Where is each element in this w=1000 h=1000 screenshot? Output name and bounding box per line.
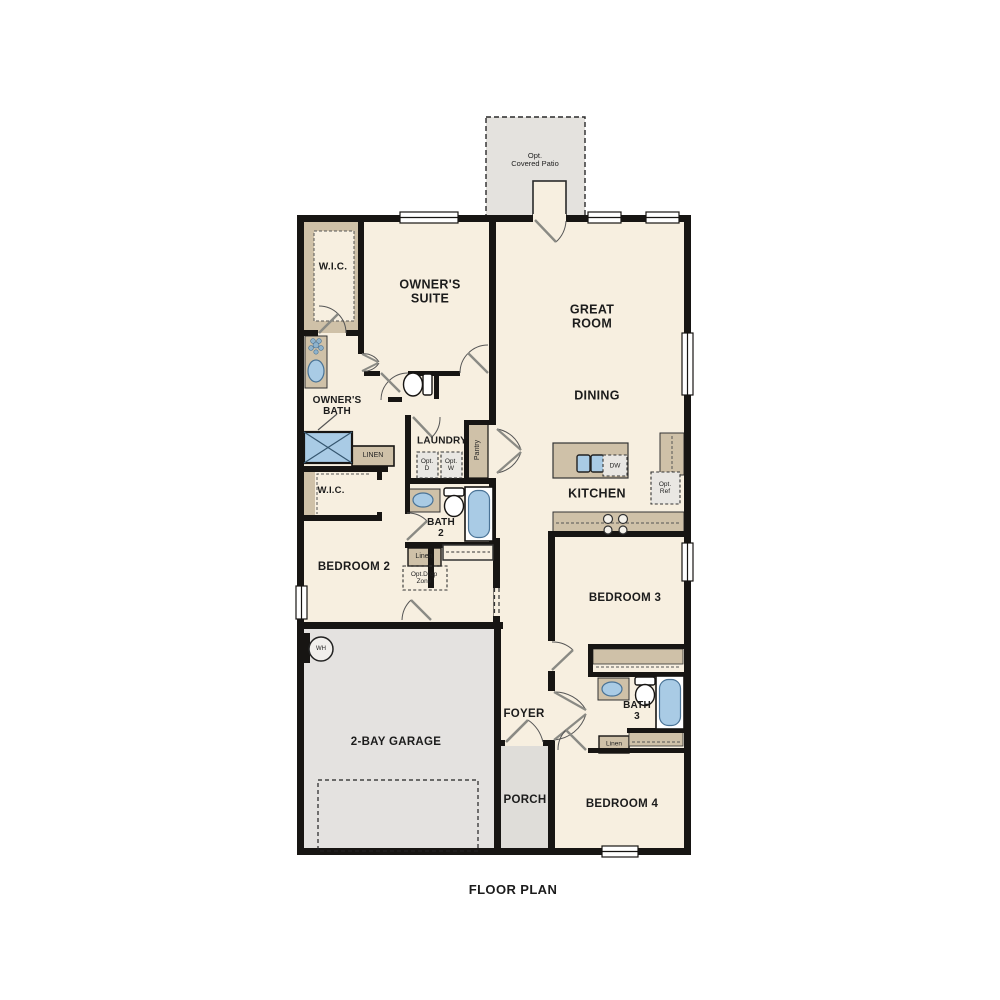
label-great-room: GREATROOM [570,304,614,331]
floor-plan-page: Opt.Covered Patio W.I.C. OWNER'SSUITE GR… [0,0,1000,1000]
label-owners-bath: OWNER'SBATH [313,396,362,418]
wic2-shelving [303,470,315,518]
floor-plan-drawing [0,0,1000,1000]
label-patio: Opt.Covered Patio [511,152,559,168]
bedroom4-closet [629,731,683,746]
bath2-toilet [444,488,464,517]
bath2-sink [413,493,433,507]
bedroom3-closet [593,649,683,664]
owners-shower [304,432,352,463]
label-pantry: Pantry [474,440,482,460]
page-title: FLOOR PLAN [469,883,558,897]
label-foyer: FOYER [503,708,544,720]
label-garage: 2-BAY GARAGE [351,736,442,748]
label-opt-drop-zone: Opt.DropZone [411,571,437,585]
label-wic1: W.I.C. [319,263,347,274]
label-linen2: Linen [415,553,432,561]
bath3-tub [656,676,684,729]
bath2-tub [465,487,493,541]
owners-toilet [404,373,433,396]
label-owners-suite: OWNER'SSUITE [399,279,460,306]
owners-sink [308,360,324,382]
label-linen1: LINEN [363,452,384,460]
label-wh: WH [316,646,326,652]
label-bedroom2: BEDROOM 2 [318,561,390,573]
label-bedroom4: BEDROOM 4 [586,798,658,810]
label-kitchen: KITCHEN [568,487,626,501]
label-dw: DW [610,462,621,469]
label-opt-ref: Opt.Ref [659,481,671,495]
label-opt-d: Opt.D [421,458,433,472]
label-bath2: BATH2 [427,518,455,540]
label-opt-w: Opt.W [445,458,457,472]
label-bath3: BATH3 [623,701,651,723]
bath3-sink [602,682,622,696]
label-dining: DINING [574,389,620,403]
label-wic2: W.I.C. [317,486,344,496]
label-bedroom3: BEDROOM 3 [589,592,661,604]
label-laundry: LAUNDRY [417,437,467,448]
label-porch: PORCH [503,794,546,806]
label-linen3: Linen [606,740,622,747]
island-sink [577,455,604,472]
